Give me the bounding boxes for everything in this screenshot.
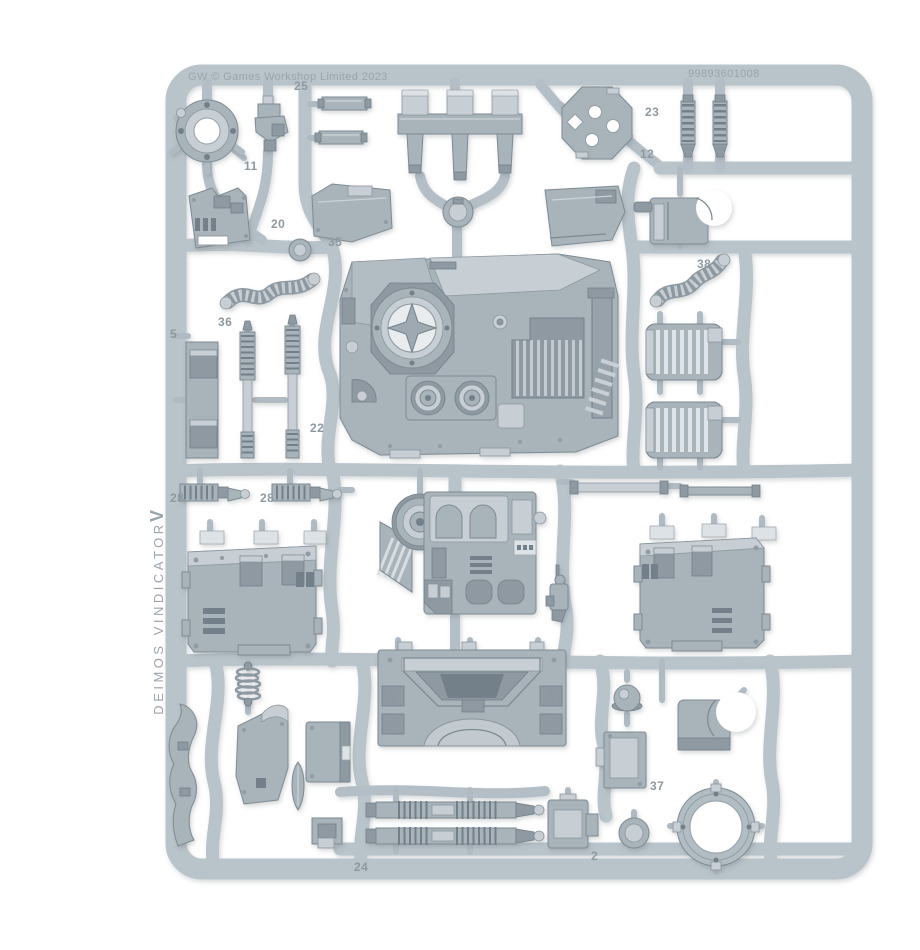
ribbed-hose-right-part <box>650 254 730 307</box>
vent-plate-part <box>189 188 250 248</box>
part-number-label: 11 <box>244 159 258 173</box>
part-number-label: 35 <box>328 235 342 249</box>
bottom-left-plate-parts <box>236 705 350 848</box>
mantlet-part <box>634 190 732 244</box>
part-number-label: 5 <box>170 327 177 341</box>
part-number-label: 36 <box>218 315 232 329</box>
bottom-dome-part <box>619 818 649 848</box>
tab-plate-part <box>186 342 218 458</box>
part-number-label: 12 <box>640 147 654 161</box>
small-dome-part <box>443 197 473 227</box>
part-number-label: 2 <box>591 849 598 863</box>
dome-part <box>289 239 311 261</box>
copyright-text: GW © Games Workshop Limited 2023 <box>188 71 388 83</box>
exhaust-cylinder-parts <box>366 802 544 844</box>
part-number-label: 20 <box>271 217 285 231</box>
ring-part <box>673 784 759 870</box>
part-number-label: 37 <box>650 779 664 793</box>
box-rail-parts <box>315 97 371 144</box>
bottom-right-parts <box>596 685 756 788</box>
product-code-text: 99893601008 <box>688 68 760 80</box>
right-door-part <box>634 524 776 651</box>
part-number-label: 24 <box>354 860 368 874</box>
piston-parts <box>240 315 300 458</box>
exhaust-stack-parts <box>681 95 727 157</box>
small-detail-part <box>255 96 288 151</box>
sprue-photo: GW © Games Workshop Limited 2023 9989360… <box>0 0 920 950</box>
top-hull-part <box>340 254 618 458</box>
part-number-label: 38 <box>697 257 711 271</box>
sloped-plate-part <box>545 186 625 246</box>
part-number-label: 23 <box>645 105 659 119</box>
front-hull-part <box>378 642 566 746</box>
kit-name-vertical-text: DEIMOS VINDICATOR <box>151 521 166 714</box>
front-plate-part <box>380 492 546 614</box>
bottom-box-part <box>548 794 598 848</box>
part-number-label: 25 <box>294 79 308 93</box>
shield-plate-part <box>312 184 392 242</box>
coil-spring-part <box>236 662 260 706</box>
photo-canvas: GW © Games Workshop Limited 2023 9989360… <box>0 0 920 950</box>
mark-v-text: V <box>147 510 167 522</box>
left-door-part <box>182 531 326 655</box>
track-guard-rail-part <box>398 90 522 180</box>
part-number-label: 28 <box>170 491 184 505</box>
part-number-label: 28 <box>260 491 274 505</box>
ribbed-hose-left-part <box>220 273 320 309</box>
octagon-plate-part <box>562 87 632 159</box>
part-number-label: 22 <box>310 421 324 435</box>
thin-bar-parts <box>570 481 760 497</box>
